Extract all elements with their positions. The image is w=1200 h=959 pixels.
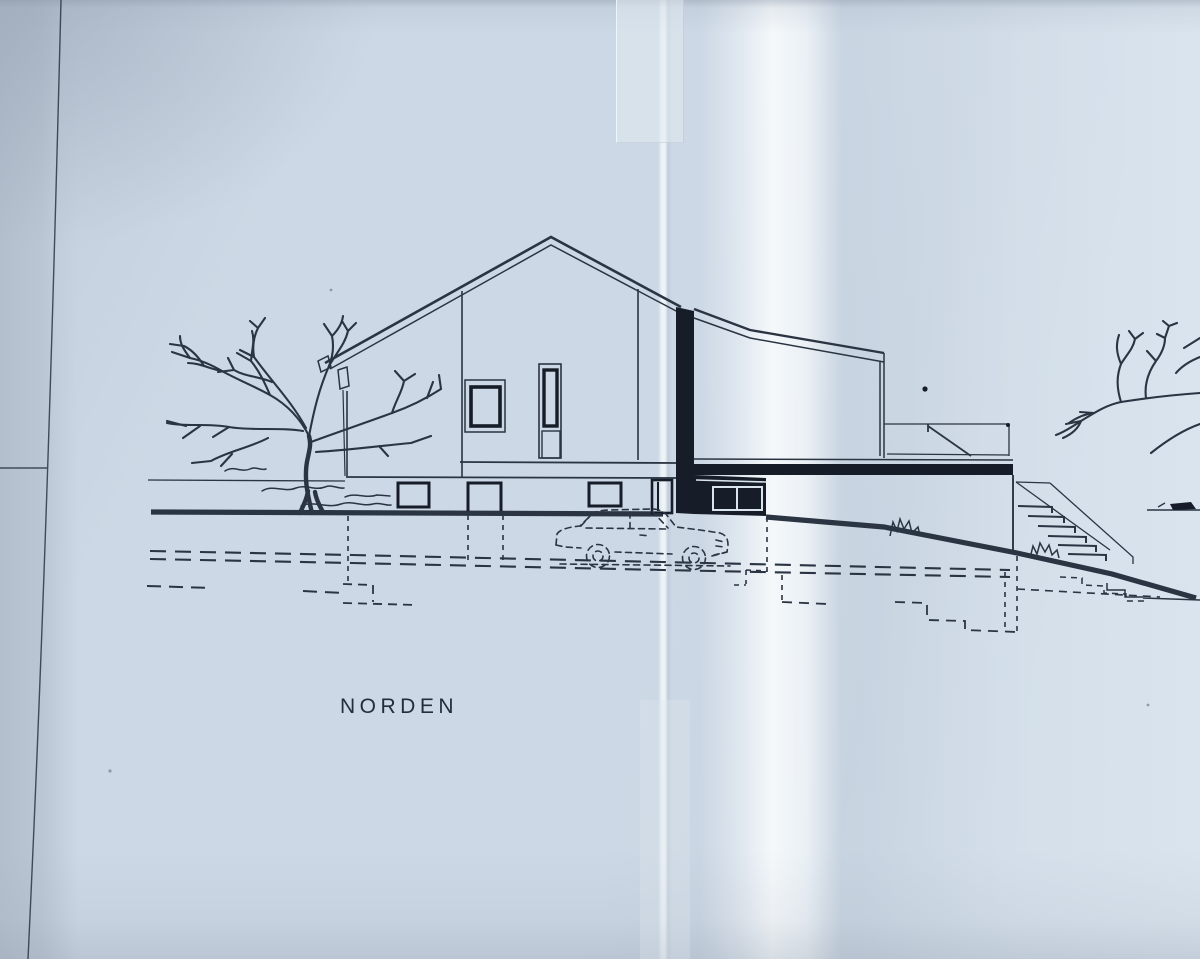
ground-scribble: [225, 468, 266, 471]
paper-specks: [108, 289, 1149, 773]
blueprint-photo: NORDEN: [0, 0, 1200, 959]
foundation-dashed-lines: [147, 515, 1160, 632]
elevation-drawing: [0, 0, 1200, 959]
window-square: [465, 380, 505, 432]
elevation-label: NORDEN: [340, 695, 458, 719]
gabled-house: [318, 237, 681, 513]
dark-pillar: [676, 307, 694, 514]
basement-window-1: [398, 483, 429, 507]
window-tall: [539, 364, 561, 458]
paper-edge-line: [0, 0, 61, 959]
bare-tree-right: [1056, 321, 1200, 453]
ground-scribble: [262, 486, 344, 491]
basement-window-3: [589, 483, 621, 506]
downspout: [338, 367, 349, 389]
ground-scribble: [345, 495, 390, 497]
basement-door: [652, 480, 672, 513]
ground-scribble: [301, 503, 391, 506]
wall-band: [678, 464, 1013, 475]
flat-roof-wing: [676, 307, 1013, 553]
ink-blot: [922, 386, 927, 391]
basement-window-2: [468, 483, 501, 511]
entrance-recess: [694, 475, 766, 516]
exterior-stairs: [1016, 482, 1133, 564]
terrace-railing: [884, 423, 1010, 456]
